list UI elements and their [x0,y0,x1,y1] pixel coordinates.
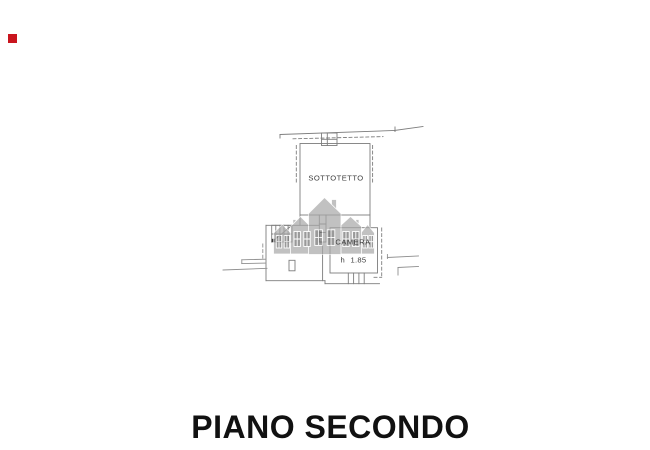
ridge-line-right [395,127,424,131]
camera-height-label: h 1.85 [341,256,367,265]
ridge-line-left [280,131,395,135]
ridge-dashed-line [293,137,383,139]
roof-ridge-lines [280,127,423,139]
left-wing-top-line [242,259,266,260]
camera-window-symbol [348,273,364,284]
right-wing-low-line [398,267,419,268]
right-wing-top-line [387,256,418,258]
left-wing-walls [223,244,267,270]
floor-plan-canvas: SOTTOTETTO CAMERA h 1.85 [0,0,650,450]
pillar [289,260,295,271]
sottotetto-label: SOTTOTETTO [308,174,363,183]
floor-title: PIANO SECONDO [0,409,650,446]
right-wing-walls [387,255,418,276]
left-wing-mid-line [242,263,266,264]
left-wing-long-line [223,268,267,270]
camera-label: CAMERA [335,238,371,247]
